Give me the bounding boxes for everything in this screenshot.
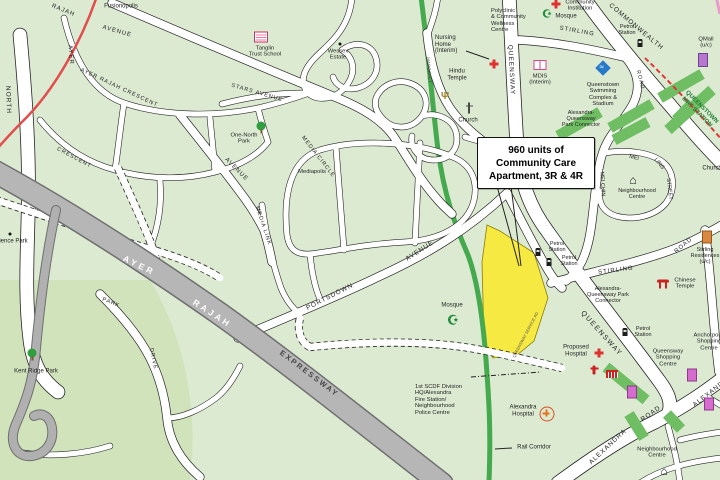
map-label-polyclinic: Polyclinic & Community Wellness Centre [491, 8, 526, 34]
pump-icon [547, 258, 552, 266]
dot-icon [9, 233, 12, 236]
map-label-church-2: Church [702, 166, 720, 173]
figure-red-icon [593, 366, 596, 375]
map-label-one-north-park: One-North Park [230, 133, 257, 146]
school-icon [254, 32, 268, 43]
map-label-nbhd-centre-1: Neighbourhood Centre [618, 188, 656, 200]
map-label-mosque-1: Mosque [555, 14, 576, 21]
map-label-mei-chin: MEI CHIN [598, 171, 605, 196]
map-label-anchorpoint: Anchorpoint Shopping Centre [694, 332, 720, 351]
callout-line-3: Apartment, 3R & 4R [478, 170, 594, 183]
map-canvas: FusionopolisRAJAHAVENUEAYERAYER RAJAH CR… [0, 0, 720, 480]
map-label-aq-connector-2: Alexandra- Queensway Park Connector [587, 286, 629, 304]
map-label-petrol-4: Petrol Station [634, 326, 651, 338]
map-label-chinese-temple: Chinese Temple [674, 278, 695, 291]
map-label-nursing-home: Nursing Home (Interim) [435, 35, 457, 55]
pump-icon [536, 248, 541, 256]
map-label-mosque-2: Mosque [441, 303, 462, 310]
swim-icon [597, 62, 610, 75]
map-label-aq-connector-1: Alexandra- Queensway Park Connector [562, 110, 600, 128]
building-orange-icon [702, 231, 712, 244]
map-label-petrol-3: Petrol Station [560, 255, 577, 267]
callout-line-2: Community Care [478, 157, 594, 170]
map-label-nbhd-centre-2: Neighbourhood Centre [637, 447, 677, 460]
cross-ring-icon [540, 407, 555, 422]
pump-icon [638, 39, 643, 47]
tree-icon [257, 122, 266, 131]
cross-red-icon [595, 349, 604, 358]
map-label-church-1: Church [458, 118, 477, 125]
map-label-petrol-2: Petrol Station [548, 241, 565, 253]
map-label-qway-shopping: Queensway Shopping Centre [653, 348, 684, 367]
hindu-temple-icon: Ψ [441, 92, 449, 102]
shop-red-icon [606, 370, 618, 378]
map-label-alexandra-hospital: Alexandra Hospital [509, 404, 536, 417]
dot-icon [339, 43, 342, 46]
map-label-mediapolis: Mediapolis [298, 169, 326, 175]
map-label-scdf: 1st SCDF Division HQ/Alexandra Fire Stat… [415, 384, 462, 416]
tree-icon [28, 349, 37, 358]
map-label-community-institution: Community Institution [565, 0, 594, 12]
map-label-kent-ridge-park: Kent Ridge Park [14, 369, 58, 376]
house-icon: ⌂ [629, 174, 636, 186]
building-magenta-icon [704, 398, 714, 411]
pump-icon [623, 328, 628, 336]
map-label-fusionopolis: Fusionopolis [104, 4, 138, 11]
map-label-north-vert: NORTH [4, 86, 12, 114]
cross-red-icon [490, 60, 499, 69]
map-label-proposed-hospital: Proposed Hospital [563, 344, 589, 357]
book-pink-icon [534, 60, 547, 70]
mosque-icon: ☪ [447, 314, 459, 327]
building-purple-icon [698, 53, 708, 67]
house-icon: ⌂ [660, 465, 667, 477]
map-label-wessex-estate: Wessex Estate [328, 49, 349, 62]
map-label-swimming: Queenstown Swimming Complex & Stadium [587, 82, 620, 108]
cross-red-icon [552, 0, 561, 9]
map-label-rail-corridor: Rail Corridor [517, 445, 551, 452]
map-label-hindu-temple: Hindu Temple [447, 68, 466, 81]
map-label-qmall: QMall (u/c) [698, 37, 713, 50]
map-label-stirling-res: Stirling Residences (u/c) [691, 247, 720, 265]
church-cross-icon [465, 103, 473, 114]
map-label-science-park: Science Park [0, 239, 28, 246]
map-label-tanglin-school: Tanglin Trust School [249, 46, 281, 59]
callout-line-1: 960 units of [478, 144, 594, 157]
temple-red-icon [657, 280, 669, 289]
map-graphics [0, 0, 720, 480]
building-magenta-icon [627, 386, 637, 399]
map-label-mdis: MDIS (Interim) [529, 74, 551, 87]
map-label-petrol-1: Petrol Station [618, 24, 635, 36]
mosque-icon: ☪ [542, 10, 552, 21]
callout-cca-units: 960 units of Community Care Apartment, 3… [477, 137, 595, 189]
building-magenta-icon [687, 369, 697, 382]
